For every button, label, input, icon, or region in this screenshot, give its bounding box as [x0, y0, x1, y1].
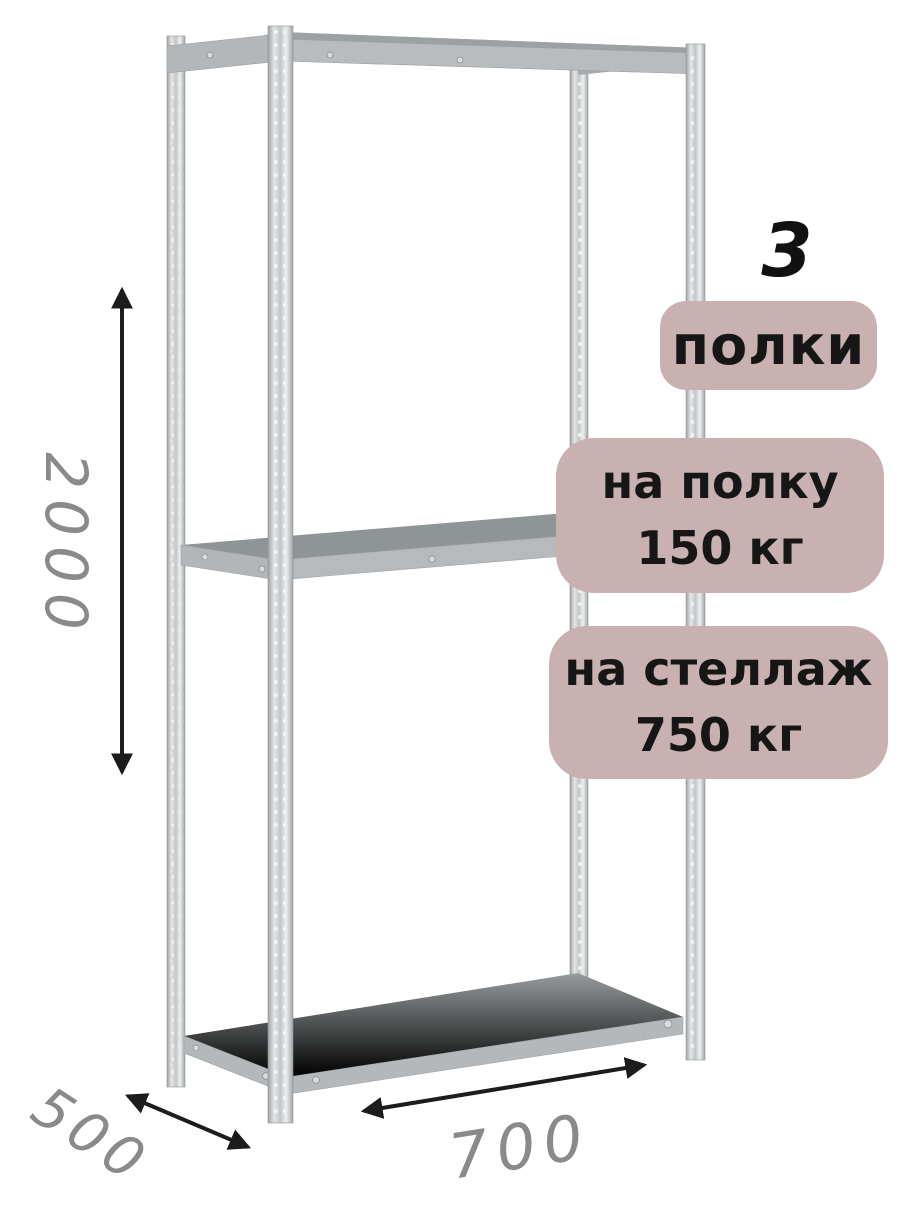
rack-load-badge: на стеллаж 750 кг — [549, 626, 888, 779]
rack-load-line1: на стеллаж — [564, 637, 872, 702]
product-image: 2000 500 700 3 полки на полку 150 кг на … — [0, 0, 900, 1200]
shelf-count-number: 3 — [712, 214, 862, 288]
shelf-count-badge: полки — [660, 301, 877, 390]
shelf-count-badge-label: полки — [672, 314, 865, 377]
post-front-left — [268, 26, 293, 1123]
rack-illustration — [0, 0, 900, 1200]
rack-load-line2: 750 кг — [635, 703, 802, 768]
shelf-load-line2: 150 кг — [636, 516, 803, 581]
height-dimension-label: 2000 — [37, 416, 95, 676]
shelf-load-badge: на полку 150 кг — [556, 438, 884, 593]
top-shelf — [167, 32, 699, 75]
shelf-load-line1: на полку — [601, 450, 838, 515]
bottom-shelf — [184, 973, 683, 1094]
